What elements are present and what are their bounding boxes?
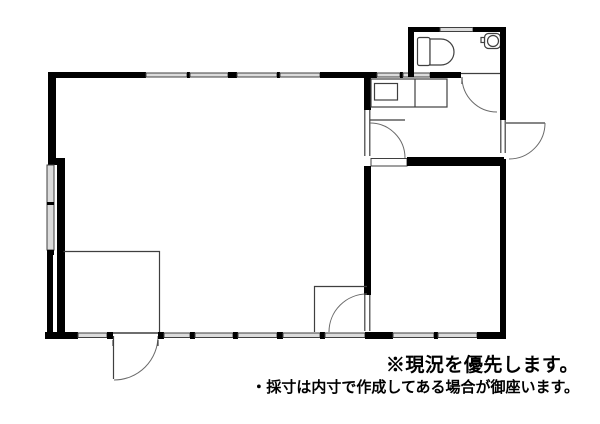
wall-segment bbox=[48, 72, 146, 78]
wall-segment bbox=[365, 332, 393, 339]
window-mullion bbox=[47, 202, 54, 205]
wall-segment bbox=[500, 159, 506, 339]
window-mullion bbox=[233, 332, 238, 339]
wall-segment bbox=[48, 72, 56, 158]
window-symbol bbox=[238, 333, 277, 338]
wall-segment bbox=[107, 332, 113, 339]
wall-outline bbox=[371, 159, 407, 167]
window-mullion bbox=[190, 332, 195, 339]
basin-faucet bbox=[481, 38, 485, 43]
wall-segment bbox=[47, 250, 54, 255]
door-swing-arc-icon bbox=[329, 294, 367, 332]
window-symbol bbox=[195, 333, 233, 338]
window-symbol bbox=[146, 73, 187, 77]
window-symbol bbox=[403, 73, 430, 77]
room-partition-wall bbox=[315, 166, 372, 332]
window-symbol bbox=[190, 73, 228, 77]
west-wall bbox=[47, 72, 65, 332]
floor-plan-page: { "canvas": { "width": 600, "height": 42… bbox=[0, 0, 600, 424]
basin-bowl bbox=[488, 36, 499, 47]
entrance-door bbox=[506, 123, 545, 159]
wall-segment bbox=[47, 255, 53, 332]
wall-segment bbox=[430, 72, 461, 78]
wall-segment bbox=[407, 157, 504, 166]
window-symbol bbox=[438, 333, 477, 338]
note-line-2: ・採寸は内寸で作成してある場合が御座います。 bbox=[251, 378, 579, 398]
window-mullion bbox=[320, 332, 325, 339]
window-symbol bbox=[325, 333, 365, 338]
wall-segment bbox=[408, 27, 414, 77]
wall-segment bbox=[277, 332, 283, 339]
window-symbol bbox=[283, 333, 320, 338]
door-swing-arc-icon bbox=[462, 77, 497, 112]
wall-segment bbox=[477, 332, 506, 339]
disclaimer-notes: ※現況を優先します。 ・採寸は内寸で作成してある場合が御座います。 bbox=[251, 353, 579, 398]
toilet-bowl-icon bbox=[430, 39, 454, 65]
kitchen-sink-icon bbox=[375, 84, 398, 101]
window-symbol bbox=[164, 333, 190, 338]
door-alcove-outline bbox=[315, 287, 368, 333]
window-mullion bbox=[434, 332, 438, 339]
north-wall bbox=[48, 72, 461, 78]
toilet-icon bbox=[418, 38, 455, 66]
kitchen-counter-icon bbox=[371, 79, 447, 107]
window-symbol bbox=[237, 73, 277, 77]
east-wall bbox=[500, 27, 545, 339]
wall-segment bbox=[364, 166, 371, 295]
south-door bbox=[113, 333, 158, 380]
note-line-1: ※現況を優先します。 bbox=[251, 353, 579, 378]
kitchen-door bbox=[370, 120, 405, 158]
window-symbol bbox=[280, 73, 320, 77]
wall-segment bbox=[45, 332, 78, 339]
wall-segment bbox=[228, 72, 237, 78]
wall-segment bbox=[364, 77, 371, 110]
kitchen-room-divider-wall bbox=[371, 157, 504, 166]
door-swing-arc-icon bbox=[114, 336, 158, 380]
toilet-tank-icon bbox=[418, 38, 431, 66]
room-door bbox=[315, 287, 368, 333]
door-swing-arc-icon bbox=[509, 123, 545, 159]
wall-segment bbox=[57, 158, 65, 332]
window-symbol bbox=[393, 333, 434, 338]
window-symbol bbox=[78, 333, 107, 338]
window-symbol bbox=[47, 165, 54, 250]
wall-segment bbox=[500, 27, 506, 120]
hand-wash-basin-icon bbox=[481, 34, 501, 49]
wall-segment bbox=[158, 332, 164, 339]
door-swing-arc-icon bbox=[370, 123, 405, 158]
closet-outline bbox=[64, 252, 160, 333]
window-symbol bbox=[377, 73, 400, 77]
window-symbol bbox=[440, 28, 473, 32]
